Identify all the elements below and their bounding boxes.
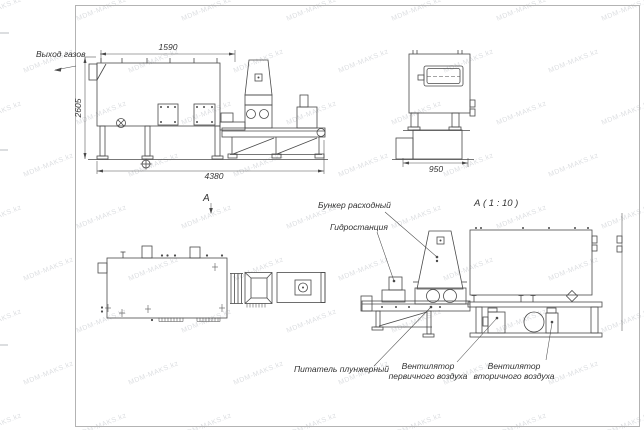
dim-1590-text: 1590 <box>159 43 178 53</box>
secondary-fan-label: Вентилятор вторичного воздуха <box>474 362 555 382</box>
centerline-markers <box>105 263 225 317</box>
furnace-body <box>97 63 220 126</box>
detail-view-a <box>361 212 622 366</box>
side-elevation-view <box>54 50 328 174</box>
feeder-plan <box>230 273 325 308</box>
gas-flow-arrow <box>54 66 76 72</box>
furnace-body-plan <box>107 258 227 318</box>
hydraulic-station-label: Гидростанция <box>330 223 388 233</box>
furnace-body-detail <box>470 227 597 302</box>
plunger-feeder-label: Питатель плунжерный <box>294 365 389 375</box>
feeder-conveyor <box>222 95 325 137</box>
feeder-frame <box>372 311 434 337</box>
end-elevation-view <box>392 50 475 167</box>
drawing-sheet: MDM-MAKS.kzMDM-MAKS.kzMDM-MAKS.kzMDM-MAK… <box>0 0 644 430</box>
gas-outlet-label: Выход газов <box>36 50 86 60</box>
fuel-hopper <box>245 60 272 128</box>
base-frame <box>413 130 462 159</box>
drain-symbol <box>141 159 152 170</box>
break-line <box>617 213 622 331</box>
furnace-door <box>418 66 463 86</box>
view-a-marker: А <box>203 193 210 205</box>
gas-outlet-flange <box>89 64 97 80</box>
conveyor-truss <box>228 137 324 158</box>
detail-a-title: А ( 1 : 10 ) <box>474 199 518 210</box>
view-direction-arrow <box>209 203 213 214</box>
hopper-label: Бункер расходный <box>318 201 391 211</box>
inspection-hatch <box>158 104 178 125</box>
dim-4380 <box>97 140 324 174</box>
inspection-hatch <box>194 104 215 125</box>
plan-view <box>98 203 325 322</box>
dim-4380-text: 4380 <box>205 172 224 182</box>
dim-2605 <box>84 57 97 159</box>
secondary-air-fan <box>524 308 558 333</box>
plunger-feeder <box>361 296 470 311</box>
primary-fan-label: Вентилятор первичного воздуха <box>389 362 468 382</box>
primary-air-fan <box>483 308 505 333</box>
dim-2605-text: 2605 <box>74 99 84 118</box>
hopper-detail <box>413 231 467 304</box>
dim-950-text: 950 <box>429 165 443 175</box>
